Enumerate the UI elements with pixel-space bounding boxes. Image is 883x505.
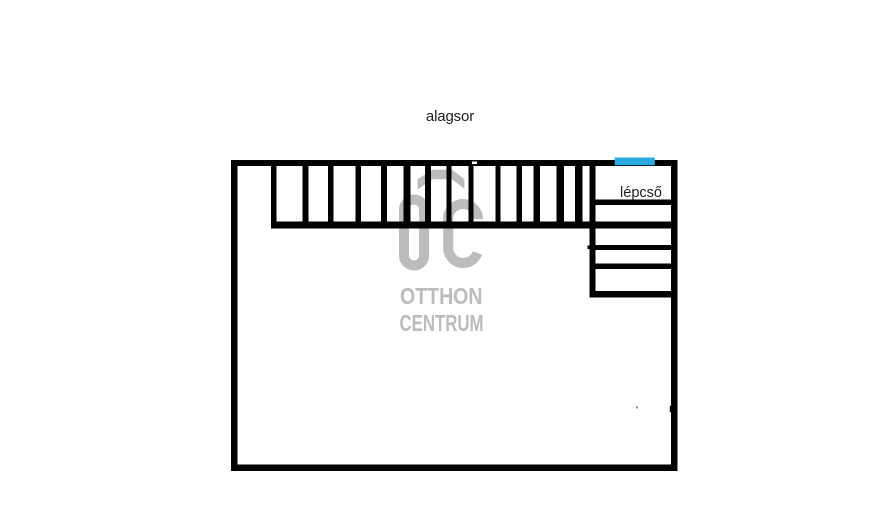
svg-text:alagsor: alagsor bbox=[426, 108, 474, 125]
svg-text:OTTHON: OTTHON bbox=[400, 283, 483, 309]
svg-text:lépcső: lépcső bbox=[620, 185, 662, 201]
svg-text:CENTRUM: CENTRUM bbox=[400, 310, 484, 336]
